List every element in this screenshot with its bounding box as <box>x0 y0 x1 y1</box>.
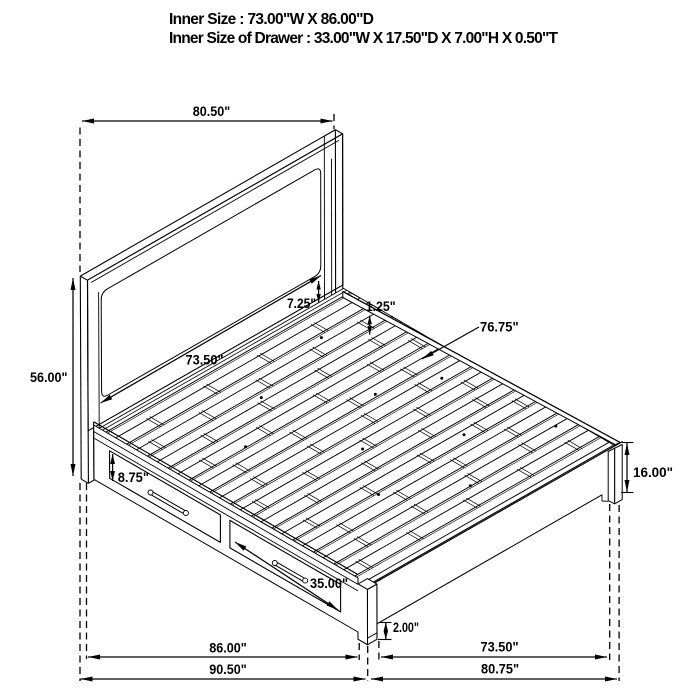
svg-text:90.50": 90.50" <box>209 661 247 677</box>
svg-text:73.50": 73.50" <box>186 352 224 368</box>
svg-text:16.00": 16.00" <box>633 464 673 480</box>
svg-text:56.00": 56.00" <box>30 369 68 385</box>
svg-text:Inner Size : 73.00"W X 86.00"D: Inner Size : 73.00"W X 86.00"D <box>169 11 374 28</box>
svg-text:73.50": 73.50" <box>481 639 519 655</box>
svg-text:80.50": 80.50" <box>193 103 231 119</box>
svg-text:Inner Size of Drawer : 33.00"W: Inner Size of Drawer : 33.00"W X 17.50"D… <box>169 30 559 47</box>
svg-text:76.75": 76.75" <box>480 319 519 335</box>
svg-text:7.25": 7.25" <box>287 295 316 311</box>
svg-text:1.25": 1.25" <box>366 298 396 314</box>
svg-text:2.00": 2.00" <box>393 619 419 635</box>
svg-text:35.00": 35.00" <box>310 575 348 591</box>
svg-text:80.75": 80.75" <box>481 661 519 677</box>
svg-text:86.00": 86.00" <box>209 640 247 656</box>
svg-text:8.75": 8.75" <box>118 469 149 485</box>
